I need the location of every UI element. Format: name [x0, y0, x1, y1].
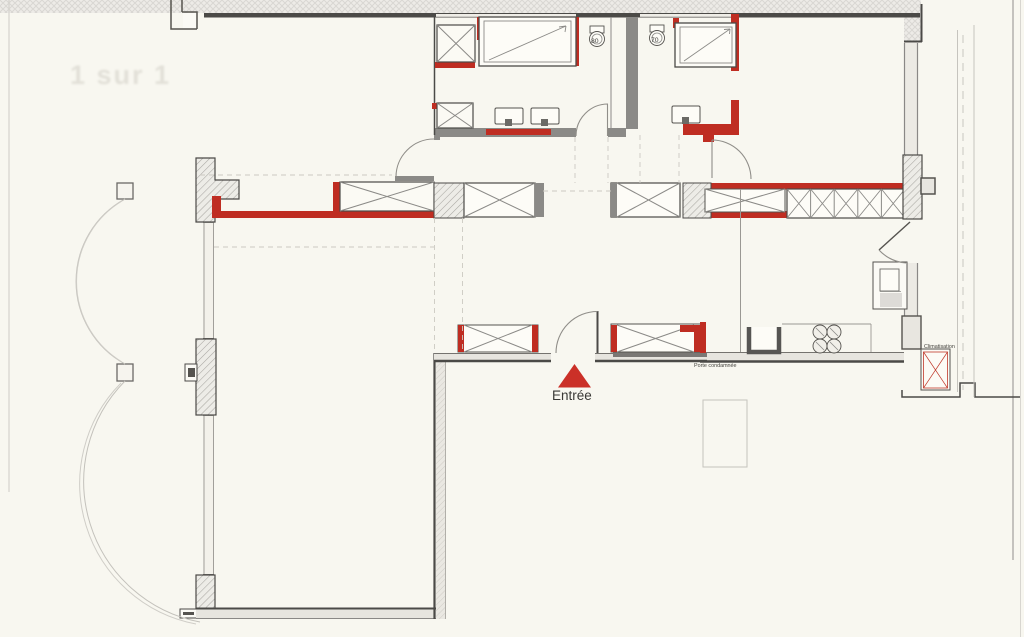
svg-text:Entrée: Entrée [552, 388, 592, 403]
svg-text:1 sur 1: 1 sur 1 [70, 60, 171, 90]
svg-text:70: 70 [651, 37, 659, 44]
svg-text:80: 80 [591, 38, 599, 45]
svg-text:Porte condamnée: Porte condamnée [694, 363, 737, 369]
svg-text:Climatisation: Climatisation [924, 344, 955, 350]
